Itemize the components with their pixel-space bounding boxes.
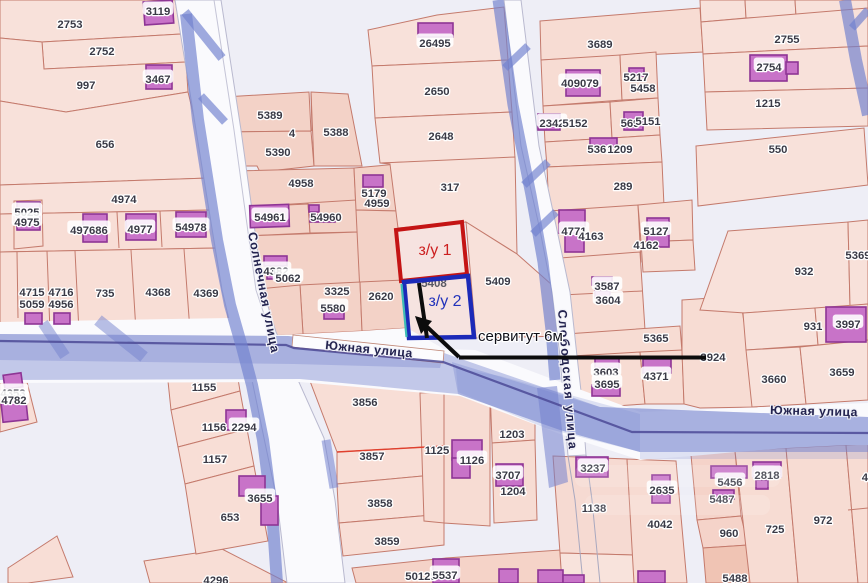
svg-text:3857: 3857 xyxy=(359,451,384,463)
svg-text:4782: 4782 xyxy=(1,395,26,407)
svg-text:3655: 3655 xyxy=(247,493,272,505)
svg-text:з/у 2: з/у 2 xyxy=(428,293,461,310)
svg-text:5458: 5458 xyxy=(630,83,655,95)
svg-text:4716: 4716 xyxy=(48,287,73,299)
svg-text:972: 972 xyxy=(814,515,833,527)
svg-text:317: 317 xyxy=(441,182,460,194)
svg-text:1204: 1204 xyxy=(500,486,526,498)
svg-text:1215: 1215 xyxy=(755,98,780,110)
svg-text:997: 997 xyxy=(77,80,96,92)
svg-text:3660: 3660 xyxy=(761,374,786,386)
svg-text:4: 4 xyxy=(289,128,296,140)
svg-text:656: 656 xyxy=(96,139,115,151)
svg-text:з/у 1: з/у 1 xyxy=(418,242,451,259)
svg-text:2650: 2650 xyxy=(424,86,449,98)
svg-text:5151: 5151 xyxy=(635,116,660,128)
svg-text:735: 735 xyxy=(96,288,115,300)
svg-text:2648: 2648 xyxy=(428,131,453,143)
svg-text:932: 932 xyxy=(795,266,814,278)
svg-text:3858: 3858 xyxy=(367,498,392,510)
svg-text:653: 653 xyxy=(221,512,240,524)
svg-text:3997: 3997 xyxy=(835,319,860,331)
svg-text:3695: 3695 xyxy=(594,379,619,391)
svg-text:5152: 5152 xyxy=(562,118,587,130)
svg-text:725: 725 xyxy=(766,524,785,536)
svg-text:931: 931 xyxy=(804,321,823,333)
svg-text:2754: 2754 xyxy=(756,62,782,74)
svg-text:2755: 2755 xyxy=(774,34,799,46)
svg-text:1203: 1203 xyxy=(499,429,524,441)
svg-text:сервитут 6м: сервитут 6м xyxy=(478,328,563,345)
svg-text:5369: 5369 xyxy=(845,250,868,262)
svg-text:289: 289 xyxy=(614,181,633,193)
svg-text:3707: 3707 xyxy=(495,470,520,482)
svg-text:5127: 5127 xyxy=(643,226,668,238)
svg-text:26495: 26495 xyxy=(419,38,450,50)
svg-text:4974: 4974 xyxy=(111,194,137,206)
svg-text:3467: 3467 xyxy=(145,74,170,86)
svg-text:49: 49 xyxy=(862,472,868,484)
svg-text:2752: 2752 xyxy=(89,46,114,58)
svg-text:5580: 5580 xyxy=(320,303,345,315)
svg-text:550: 550 xyxy=(769,144,788,156)
svg-text:1126: 1126 xyxy=(460,455,485,467)
svg-text:3659: 3659 xyxy=(829,367,854,379)
svg-text:1209: 1209 xyxy=(607,144,632,156)
svg-text:1157: 1157 xyxy=(203,454,228,466)
svg-text:4296: 4296 xyxy=(203,575,228,583)
svg-text:1155: 1155 xyxy=(192,382,217,394)
svg-text:5409: 5409 xyxy=(485,276,510,288)
svg-text:5388: 5388 xyxy=(323,127,348,139)
svg-text:4958: 4958 xyxy=(288,178,313,190)
svg-text:5488: 5488 xyxy=(722,573,747,583)
svg-text:3119: 3119 xyxy=(146,6,171,18)
svg-text:409079: 409079 xyxy=(561,78,599,90)
svg-text:2620: 2620 xyxy=(368,291,393,303)
svg-text:4977: 4977 xyxy=(127,224,152,236)
svg-text:4042: 4042 xyxy=(647,519,672,531)
svg-text:1125: 1125 xyxy=(425,445,450,457)
svg-text:497686: 497686 xyxy=(70,225,108,237)
svg-text:5365: 5365 xyxy=(643,333,668,345)
svg-text:3325: 3325 xyxy=(324,286,349,298)
svg-text:4163: 4163 xyxy=(578,231,603,243)
svg-text:4956: 4956 xyxy=(48,299,73,311)
svg-text:4975: 4975 xyxy=(14,217,39,229)
svg-text:3856: 3856 xyxy=(352,397,377,409)
svg-text:54960: 54960 xyxy=(310,212,341,224)
svg-text:2342: 2342 xyxy=(539,118,564,130)
svg-text:54961: 54961 xyxy=(254,212,285,224)
svg-text:960: 960 xyxy=(720,528,739,540)
svg-text:1156: 1156 xyxy=(202,422,227,434)
svg-text:5389: 5389 xyxy=(257,110,282,122)
svg-text:4162: 4162 xyxy=(633,240,658,252)
svg-text:3689: 3689 xyxy=(587,39,612,51)
svg-text:4371: 4371 xyxy=(643,371,668,383)
svg-text:3604: 3604 xyxy=(595,295,621,307)
svg-text:4369: 4369 xyxy=(193,288,218,300)
svg-text:4368: 4368 xyxy=(145,287,170,299)
svg-text:3859: 3859 xyxy=(374,536,399,548)
svg-text:5537: 5537 xyxy=(432,570,457,582)
svg-text:54978: 54978 xyxy=(175,222,206,234)
svg-text:Южная улица: Южная улица xyxy=(770,403,858,419)
svg-text:4715: 4715 xyxy=(19,287,44,299)
svg-text:5062: 5062 xyxy=(275,273,300,285)
svg-text:5059: 5059 xyxy=(19,299,44,311)
svg-text:2294: 2294 xyxy=(231,422,257,434)
svg-text:5390: 5390 xyxy=(265,147,290,159)
svg-text:2753: 2753 xyxy=(57,19,82,31)
svg-text:4959: 4959 xyxy=(364,198,389,210)
